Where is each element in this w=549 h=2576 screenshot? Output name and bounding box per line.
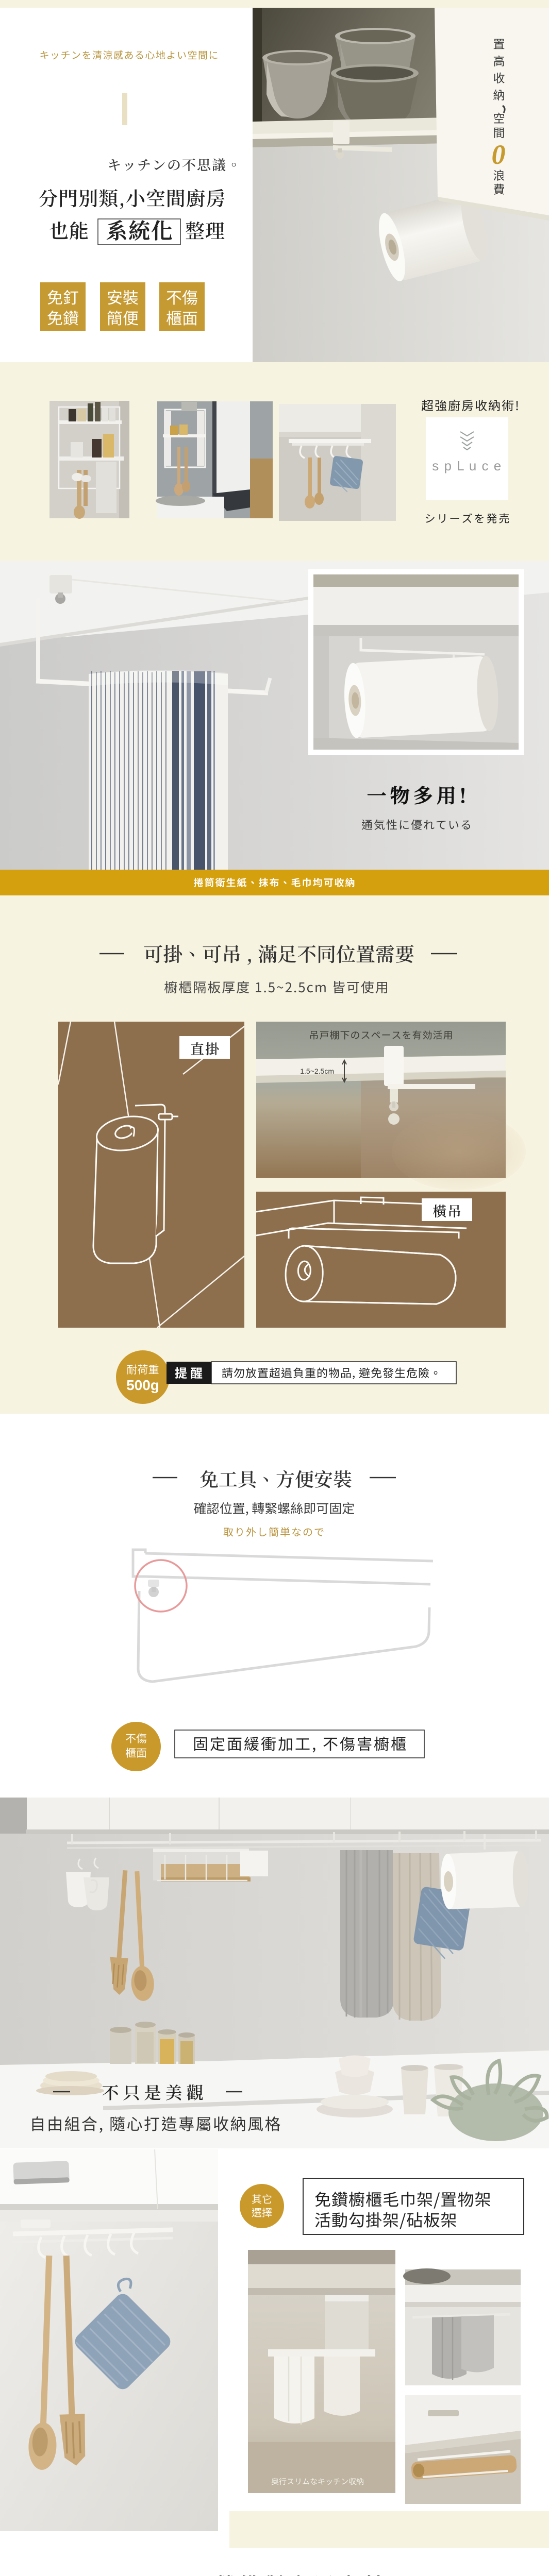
svg-text:1.5~2.5cm: 1.5~2.5cm [300, 1067, 334, 1075]
svg-text:0: 0 [492, 139, 506, 170]
svg-text:500g: 500g [126, 1377, 159, 1393]
svg-text:s p L u c e: s p L u c e [432, 458, 502, 473]
